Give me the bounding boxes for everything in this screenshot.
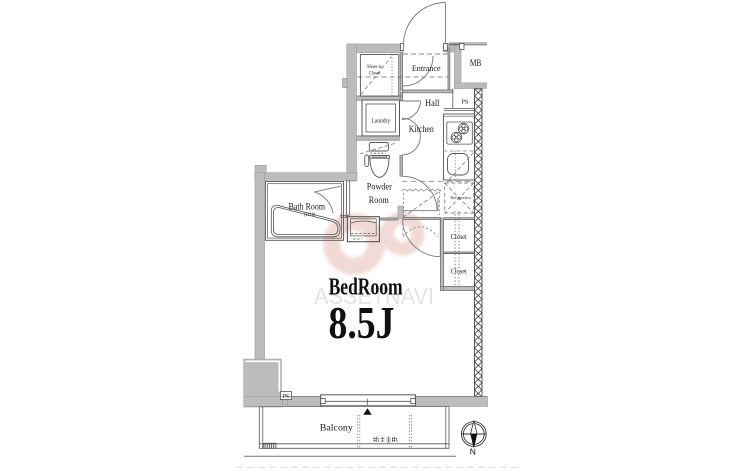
svg-text:MB: MB <box>470 59 482 69</box>
svg-text:Balcony: Balcony <box>320 423 353 434</box>
svg-text:(1116): (1116) <box>304 211 315 218</box>
svg-text:Laundry: Laundry <box>371 117 390 124</box>
svg-text:PS: PS <box>283 394 289 400</box>
svg-text:Kitchen: Kitchen <box>409 124 434 134</box>
svg-text:Entrance: Entrance <box>412 64 441 73</box>
svg-text:Refrigerator: Refrigerator <box>450 195 471 200</box>
svg-text:8.5J: 8.5J <box>329 297 395 348</box>
svg-text:Hall: Hall <box>425 98 440 108</box>
svg-text:Shoes-in: Shoes-in <box>367 64 382 70</box>
svg-text:PS: PS <box>461 98 468 105</box>
svg-text:N: N <box>470 447 476 457</box>
svg-text:Closet: Closet <box>369 70 381 76</box>
svg-text:Room: Room <box>369 196 390 206</box>
svg-text:Powder: Powder <box>367 183 393 193</box>
